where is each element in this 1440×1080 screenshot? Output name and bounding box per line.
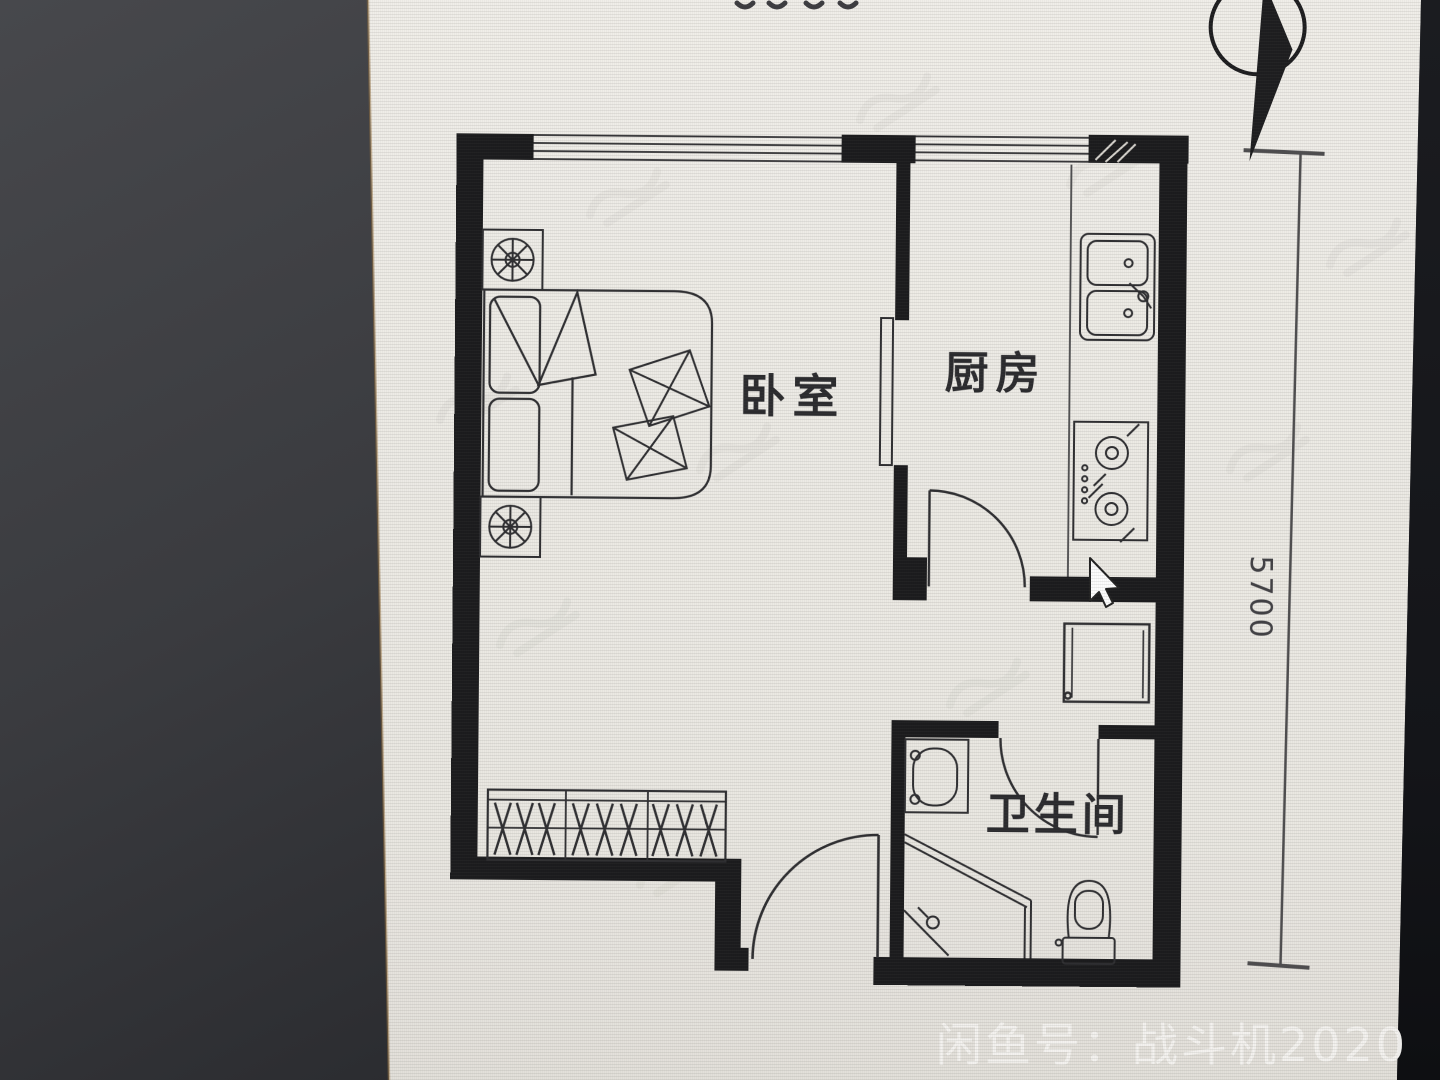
kitchen-label: 厨房 [944, 348, 1046, 400]
screen-photo: 卧室 厨房 卫生间 5700 闲鱼号：战斗机2020 [0, 0, 1440, 1080]
dimension-label: 5700 [1242, 555, 1278, 640]
bottom-watermark: 闲鱼号：战斗机2020 [936, 1018, 1408, 1072]
bathroom-label: 卫生间 [986, 789, 1130, 841]
bedroom-label: 卧室 [739, 369, 845, 424]
